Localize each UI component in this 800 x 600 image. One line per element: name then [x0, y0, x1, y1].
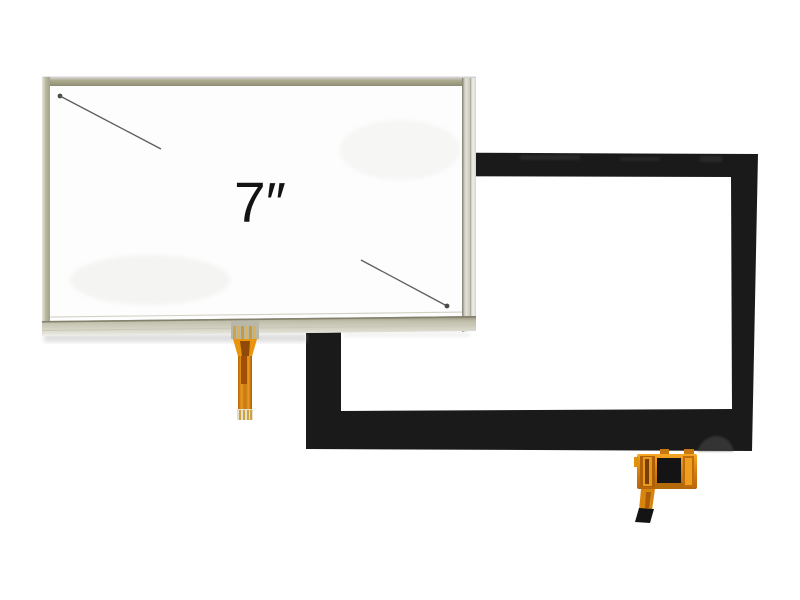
svg-text:7″: 7″ — [234, 171, 286, 235]
